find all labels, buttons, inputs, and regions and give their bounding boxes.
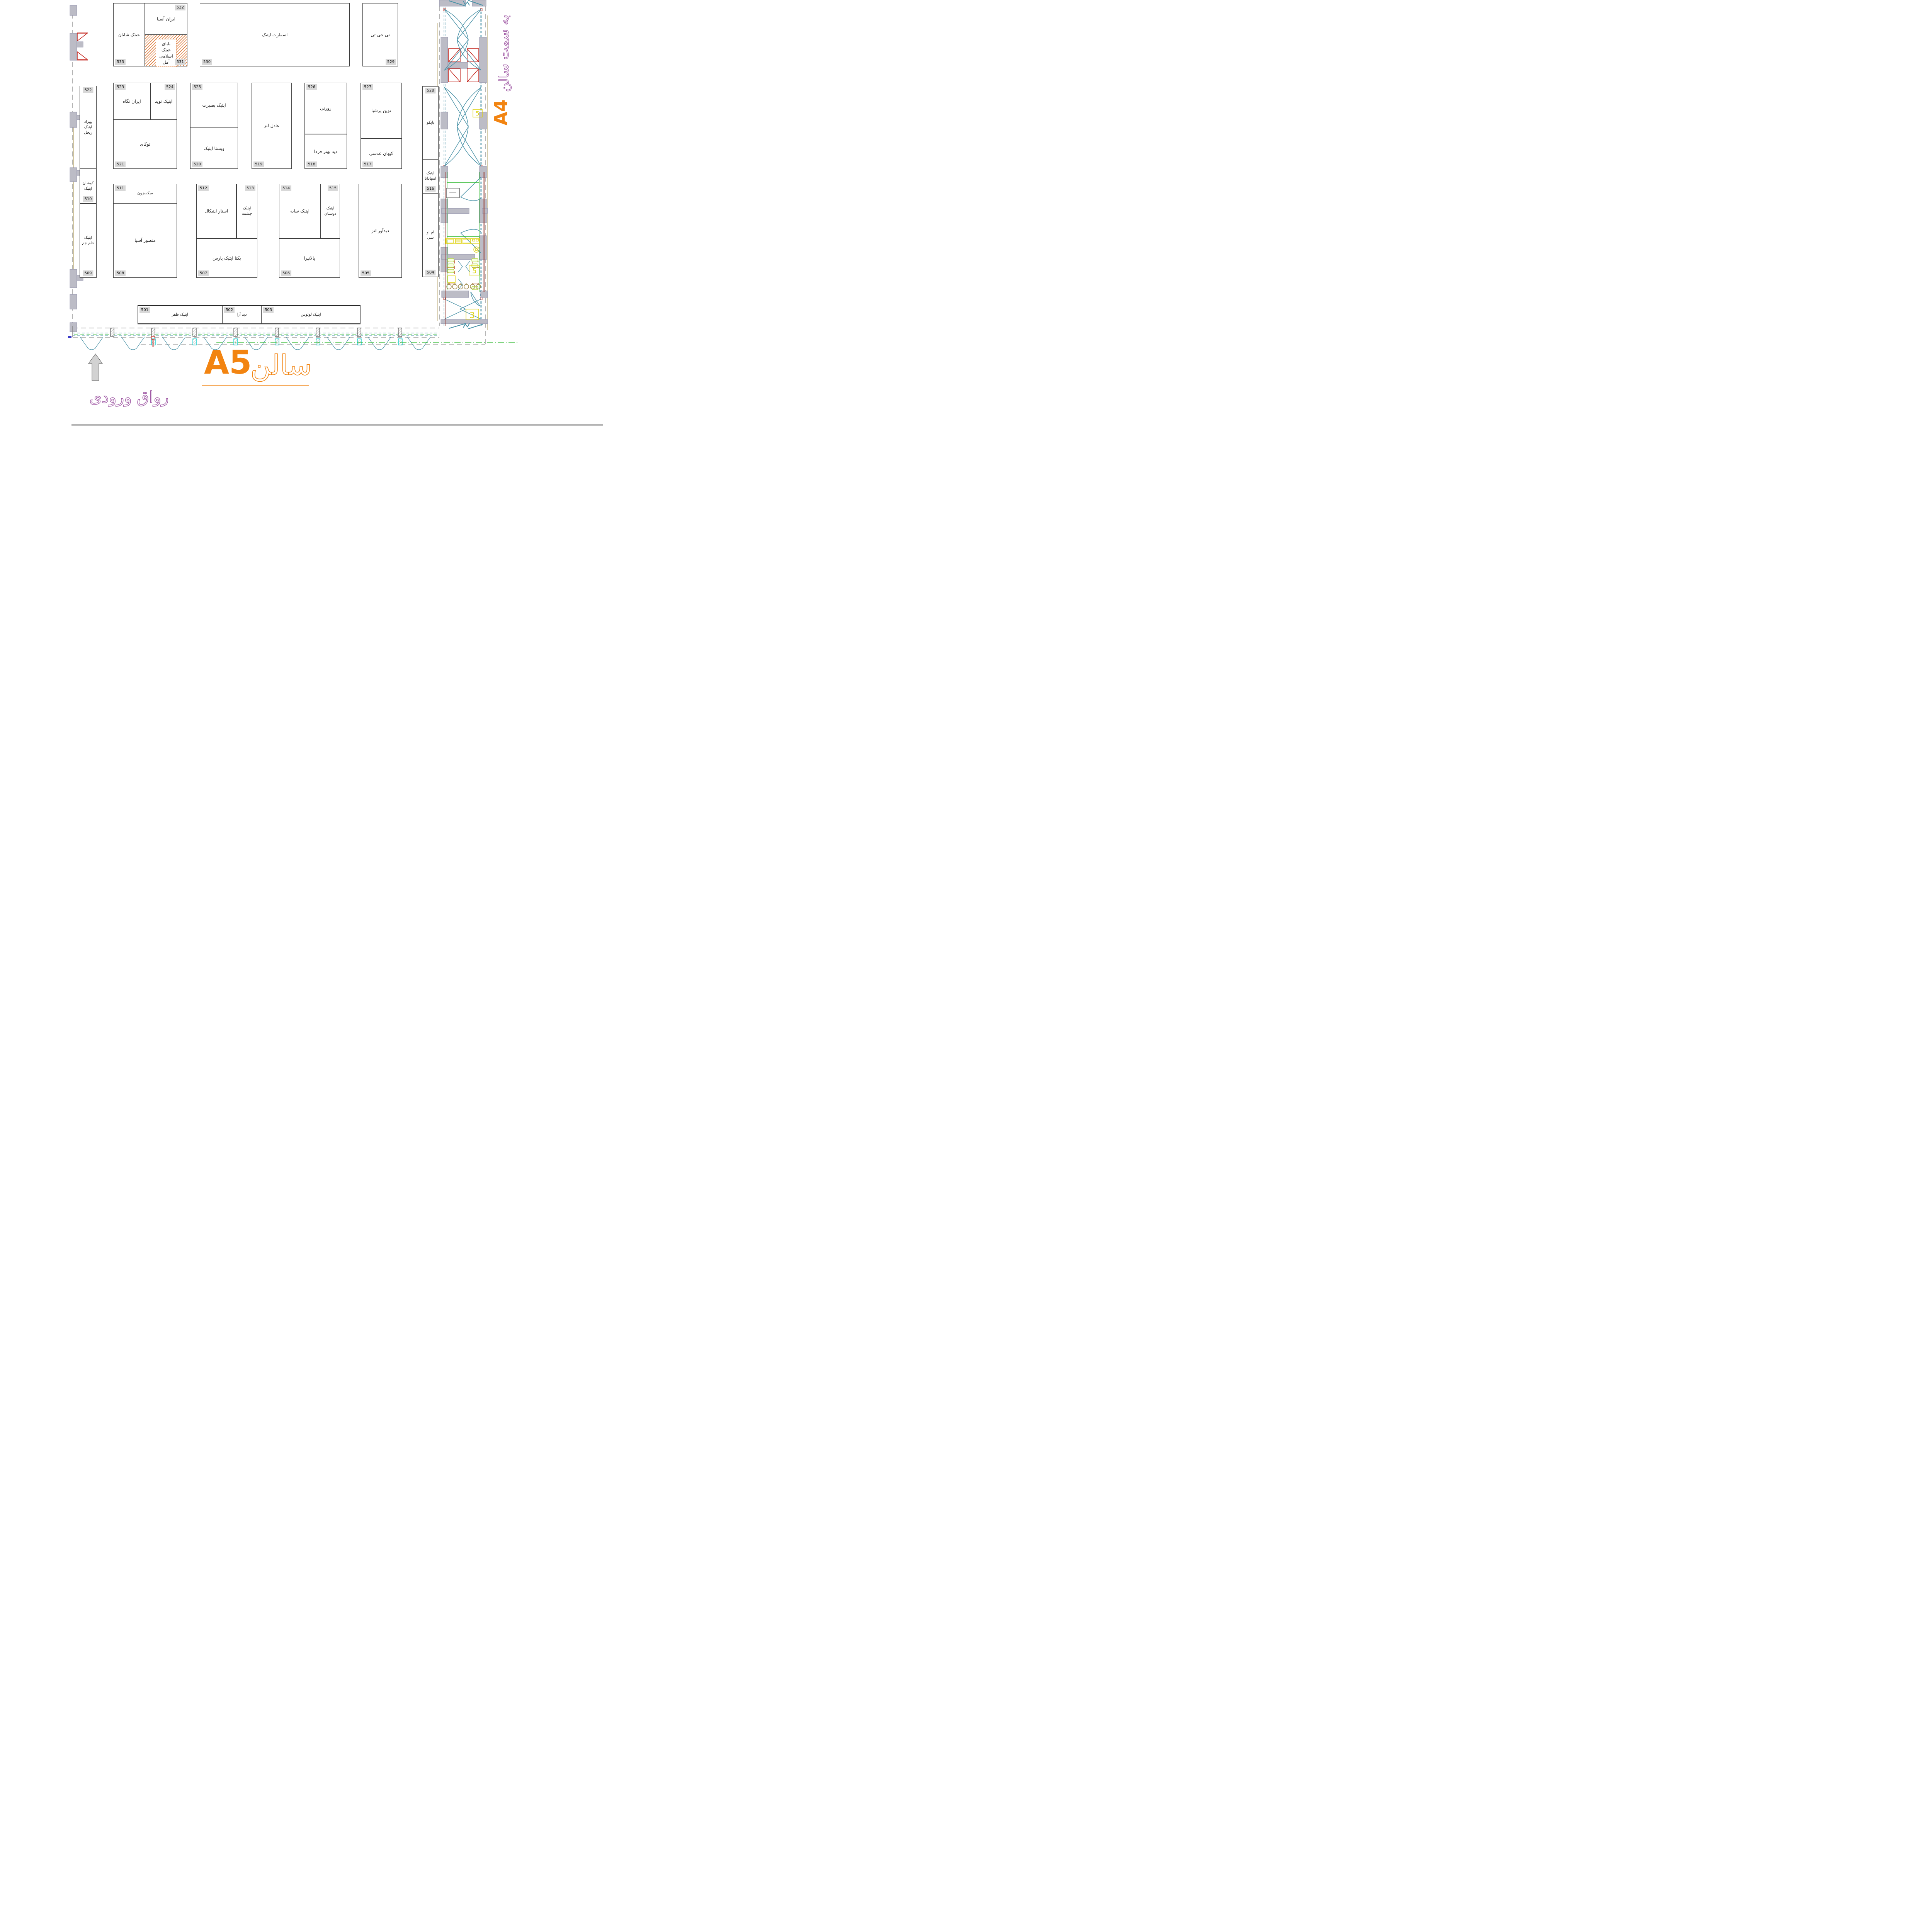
booth-name: اپتیک ظفر [138,306,222,323]
booth-529: 529تی جی تی [362,3,398,66]
booth-number: 520 [192,161,202,167]
booth-name: اپتیک جام جم [80,204,96,277]
booth-name: اپتیک دوستان [321,184,340,238]
room-marker-5a: 5 [476,110,480,117]
booth-number: 504 [425,270,435,275]
booth-526: 526روزتی [304,83,347,134]
booth-521: 521توکای [113,120,177,169]
facade-door-swings [80,337,430,350]
booth-number: 526 [306,84,317,90]
booth-number: 517 [362,161,373,167]
booth-name: اپتیک لوتوس [262,306,360,323]
survey-mark [68,336,71,338]
booth-number: 528 [425,88,435,93]
booth-number: 507 [198,270,209,276]
booth-number: 523 [115,84,126,90]
booth-523: 523ایران نگاه [113,83,150,120]
booth-519: 519عادل لنز [252,83,292,169]
booth-number: 514 [281,185,291,191]
booth-530: 530اسمارت اپتیک [200,3,350,66]
booth-name: روزتی [305,83,347,134]
booth-504: 504ام او سی [422,193,439,277]
booth-number: 510 [83,196,93,202]
booth-525: 525اپتیک بصیرت [190,83,238,128]
hall-name: سالن [250,350,312,381]
booth-514: 514اپتیک سایه [279,184,321,238]
booth-number: 516 [425,186,435,192]
booth-532: 532ایران آسیا [145,3,187,35]
booth-513: 513اپتیک چشمه [236,184,257,238]
booth-502: 502دید آرا [222,306,261,324]
booth-number: 531 [175,59,185,65]
booth-number: 519 [253,161,264,167]
door-swings [444,0,483,329]
booth-name: عینک شایان [114,3,145,66]
booth-524: 524اپتیک نوید [150,83,177,120]
booth-501: 501اپتیک ظفر [138,306,222,324]
booth-number: 512 [198,185,209,191]
booth-name: بابای عینک اسلامی آمل [156,39,177,66]
room-marker-3: 3 [469,311,474,320]
booth-531: 531بابای عینک اسلامی آمل [145,35,187,66]
booth-507: 507یکتا اپتیک پارس [196,238,257,278]
booth-number: 532 [175,5,185,10]
booth-522: 522بهزاد اپتیک ریچل [80,86,97,169]
booth-509: 509اپتیک جام جم [80,204,97,278]
booth-number: 509 [83,270,93,276]
booth-name: عادل لنز [252,83,291,168]
booth-number: 533 [115,59,126,65]
booth-name: بهزاد اپتیک ریچل [80,86,96,168]
booth-508: 508منصور آسیا [113,203,177,278]
adjacent-hall-code: A4 [490,99,511,126]
booth-name: اپتیک سایه [279,184,320,238]
booth-name: تی جی تی [363,3,398,66]
booth-number: 522 [83,87,93,93]
booth-number: 527 [362,84,373,90]
booth-number: 515 [328,185,338,191]
booth-510: 510کوشان اپتیک [80,169,97,204]
kitchen-counter [446,238,480,252]
booth-number: 513 [245,185,255,191]
booth-number: 530 [202,59,212,65]
booth-533: 533عینک شایان [113,3,145,66]
booth-number: 502 [224,307,235,313]
booth-number: 501 [139,307,150,313]
booth-name: استار اپتیکال [197,184,236,238]
booth-name: منصور آسیا [114,204,177,277]
booth-515: 515اپتیک دوستان [321,184,340,238]
booth-528: 528باپکو [422,86,439,159]
booth-name: باپکو [423,87,438,159]
adjacent-hall-direction: به سمت سالن [497,15,512,92]
booth-number: 529 [386,59,396,65]
booth-527: 527نوین پرشیا [361,83,402,138]
booth-503: 503اپتیک لوتوس [261,306,361,324]
booth-512: 512استار اپتیکال [196,184,236,238]
booth-name: ام او سی [423,194,438,277]
booth-number: 518 [306,161,317,167]
booth-number: 505 [361,270,371,276]
booth-number: 503 [263,307,274,313]
booth-number: 511 [115,185,126,191]
hall-code: A5 [204,346,252,379]
hall-title-underline [202,385,309,388]
booth-number: 508 [115,270,126,276]
booth-506: 506پالانیرا [279,238,340,278]
entrance-arrow-icon [88,354,102,381]
booth-518: 518دید بهتر فردا [304,134,347,169]
booth-505: 505دیدآور لنز [359,184,402,278]
booth-number: 524 [165,84,175,90]
booth-number: 521 [115,161,126,167]
booth-511: 511میکسزون [113,184,177,203]
booth-520: 520ویستا اپتیک [190,128,238,169]
booth-name: اپتیک چشمه [237,184,257,238]
booth-name: نوین پرشیا [361,83,401,138]
booth-516: 516اپتیک اسپادانا [422,159,439,193]
floor-plan: 5 5 3 [0,0,603,426]
booth-name: دیدآور لنز [359,184,401,277]
booth-name: اسمارت اپتیک [200,3,349,66]
entrance-label: رواق ورودی [89,388,169,406]
booth-number: 525 [192,84,202,90]
booth-number: 506 [281,270,291,276]
room-marker-5b: 5 [472,267,476,275]
booth-517: 517کیهان عدسی [361,138,402,169]
